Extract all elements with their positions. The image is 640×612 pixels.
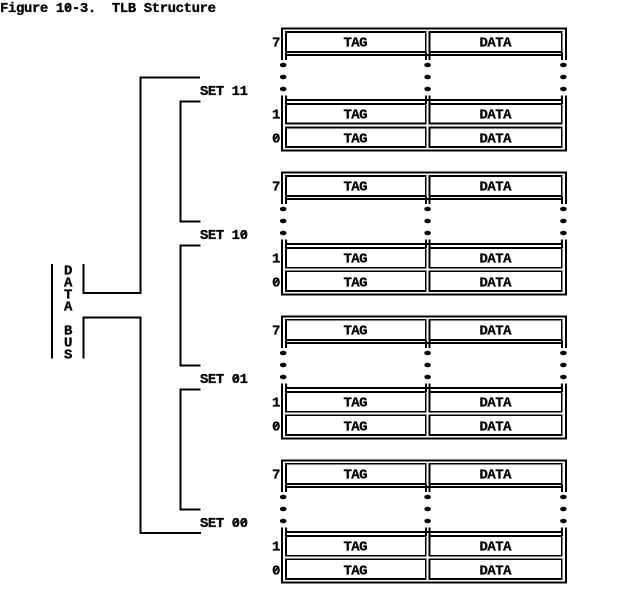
- svg-text:TAG: TAG: [344, 564, 368, 580]
- svg-text:1: 1: [272, 396, 280, 412]
- svg-text:DATA: DATA: [480, 108, 513, 124]
- svg-text:DATA: DATA: [480, 564, 513, 580]
- svg-text:1: 1: [272, 252, 280, 268]
- svg-text:DATA: DATA: [480, 396, 513, 412]
- svg-text:S: S: [64, 347, 72, 363]
- svg-text:7: 7: [272, 180, 280, 196]
- svg-text:0: 0: [272, 132, 280, 148]
- svg-text:7: 7: [272, 36, 280, 52]
- svg-text:DATA: DATA: [480, 132, 513, 148]
- svg-text:SET 10: SET 10: [200, 228, 248, 244]
- svg-text:TAG: TAG: [344, 180, 368, 196]
- svg-text:0: 0: [272, 420, 280, 436]
- svg-text:TAG: TAG: [344, 540, 368, 556]
- svg-text:DATA: DATA: [480, 36, 513, 52]
- svg-text:1: 1: [272, 108, 280, 124]
- svg-text:TAG: TAG: [344, 108, 368, 124]
- svg-text:SET 00: SET 00: [200, 516, 248, 532]
- svg-text:DATA: DATA: [480, 180, 513, 196]
- svg-text:TAG: TAG: [344, 36, 368, 52]
- svg-text:0: 0: [272, 276, 280, 292]
- svg-text:DATA: DATA: [480, 468, 513, 484]
- svg-text:SET 01: SET 01: [200, 372, 248, 388]
- svg-text:DATA: DATA: [480, 540, 513, 556]
- svg-text:DATA: DATA: [480, 276, 513, 292]
- svg-text:Figure 10-3. TLB Structure: Figure 10-3. TLB Structure: [0, 1, 216, 17]
- svg-text:DATA: DATA: [480, 252, 513, 268]
- svg-text:TAG: TAG: [344, 420, 368, 436]
- svg-text:TAG: TAG: [344, 252, 368, 268]
- svg-text:1: 1: [272, 540, 280, 556]
- svg-text:A: A: [64, 299, 73, 315]
- svg-text:TAG: TAG: [344, 324, 368, 340]
- svg-text:TAG: TAG: [344, 132, 368, 148]
- svg-text:SET 11: SET 11: [200, 84, 248, 100]
- svg-text:TAG: TAG: [344, 396, 368, 412]
- svg-text:0: 0: [272, 564, 280, 580]
- svg-text:DATA: DATA: [480, 420, 513, 436]
- svg-text:TAG: TAG: [344, 468, 368, 484]
- svg-text:TAG: TAG: [344, 276, 368, 292]
- svg-text:DATA: DATA: [480, 324, 513, 340]
- svg-text:7: 7: [272, 468, 280, 484]
- svg-text:7: 7: [272, 324, 280, 340]
